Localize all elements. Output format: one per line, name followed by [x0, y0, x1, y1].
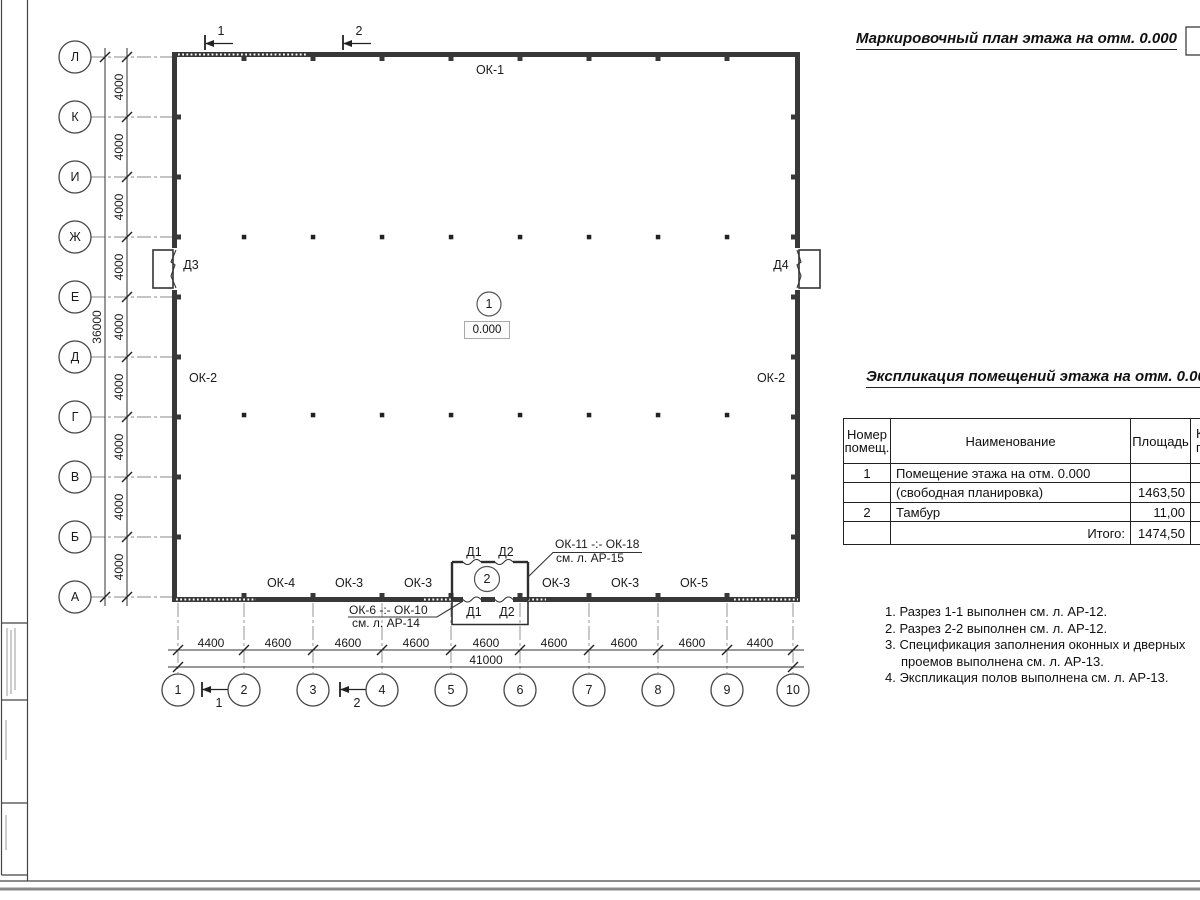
axis-row-label: В	[71, 471, 79, 484]
door-left-porch	[153, 250, 176, 288]
axis-row-label: Л	[71, 51, 79, 64]
callout-left-line1: ОК-6 -:- ОК-10	[349, 604, 428, 616]
table-header-name: Наименование	[891, 419, 1131, 464]
table-cell-category	[1191, 464, 1200, 483]
dim-h: 4600	[541, 637, 568, 649]
axis-row-label: И	[71, 171, 80, 184]
dim-h: 4600	[679, 637, 706, 649]
callout-right-line2: см. л. АР-15	[556, 552, 624, 564]
axis-row-label: Г	[72, 411, 79, 424]
axis-col-label: 4	[379, 684, 386, 697]
level-mark: 0.000	[464, 321, 510, 339]
door-mark: Д2	[498, 546, 513, 559]
top-right-box	[1186, 27, 1200, 55]
dim-v: 4000	[113, 554, 125, 581]
axis-col-label: 7	[586, 684, 593, 697]
room-explication-table: Номерпомещ. Наименование Площадь Капо 1 …	[843, 418, 1200, 545]
section-mark-label: 2	[354, 697, 361, 710]
axis-col-label: 6	[517, 684, 524, 697]
axis-col-label: 5	[448, 684, 455, 697]
note-item: 3. Спецификация заполнения оконных и две…	[885, 637, 1200, 670]
table-header-number: Номерпомещ.	[844, 419, 891, 464]
window-mark: ОК-4	[267, 577, 295, 590]
callout-right-line1: ОК-11 -:- ОК-18	[555, 538, 639, 550]
table-cell-total-area: 1474,50	[1131, 522, 1191, 544]
table-cell-area	[1131, 464, 1191, 483]
window-mark: ОК-3	[335, 577, 363, 590]
axis-row-label: К	[71, 111, 78, 124]
window-mark: ОК-2	[189, 372, 217, 385]
axis-row-label: Е	[71, 291, 79, 304]
axis-col-label: 1	[175, 684, 182, 697]
axis-row-label: Ж	[69, 231, 81, 244]
dim-h-total: 41000	[469, 654, 502, 666]
window-mark: ОК-3	[611, 577, 639, 590]
table-cell-total-label: Итого:	[891, 522, 1131, 544]
note-item: 2. Разрез 2-2 выполнен см. л. АР-12.	[885, 621, 1200, 638]
axis-col-label: 9	[724, 684, 731, 697]
table-cell-name: Тамбур	[891, 503, 1131, 522]
section-mark-label: 1	[218, 25, 225, 38]
dim-h: 4600	[403, 637, 430, 649]
notes-list: 1. Разрез 1-1 выполнен см. л. АР-12. 2. …	[885, 604, 1200, 687]
window-mark: ОК-2	[757, 372, 785, 385]
dim-h: 4600	[473, 637, 500, 649]
dim-v: 4000	[113, 254, 125, 281]
room-number: 2	[484, 573, 491, 586]
dim-v-total: 36000	[91, 310, 103, 343]
table-cell-num	[844, 522, 891, 544]
table-header-area: Площадь	[1131, 419, 1191, 464]
section-mark-label: 2	[356, 25, 363, 38]
axis-col-label: 3	[310, 684, 317, 697]
plan-title: Маркировочный план этажа на отм. 0.000	[856, 30, 1177, 50]
door-mark: Д1	[466, 606, 481, 619]
table-cell-category	[1191, 483, 1200, 503]
axis-row-label: Б	[71, 531, 79, 544]
window-mark: ОК-3	[542, 577, 570, 590]
axis-row-label: А	[71, 591, 79, 604]
axis-circles	[59, 41, 809, 706]
table-cell-num: 1	[844, 464, 891, 483]
dim-v: 4000	[113, 134, 125, 161]
table-cell-area: 1463,50	[1131, 483, 1191, 503]
note-item: 1. Разрез 1-1 выполнен см. л. АР-12.	[885, 604, 1200, 621]
dim-v: 4000	[113, 314, 125, 341]
stamp-text-marks	[6, 628, 15, 850]
table-cell-num	[844, 483, 891, 503]
note-item: 4. Экспликация полов выполнена см. л. АР…	[885, 670, 1200, 687]
table-cell-num: 2	[844, 503, 891, 522]
dim-v: 4000	[113, 194, 125, 221]
table-cell-category	[1191, 522, 1200, 544]
dim-v: 4000	[113, 494, 125, 521]
dim-v: 4000	[113, 74, 125, 101]
table-cell-name: Помещение этажа на отм. 0.000	[891, 464, 1131, 483]
axis-col-label: 8	[655, 684, 662, 697]
room-number: 1	[486, 298, 493, 311]
level-mark-value: 0.000	[473, 324, 502, 336]
callout-left-line2: см. л. АР-14	[352, 617, 420, 629]
door-mark: Д2	[499, 606, 514, 619]
door-mark: Д3	[183, 259, 198, 272]
window-mark: ОК-3	[404, 577, 432, 590]
dim-v: 4000	[113, 374, 125, 401]
door-mark: Д1	[466, 546, 481, 559]
dim-h: 4600	[335, 637, 362, 649]
table-cell-category	[1191, 503, 1200, 522]
window-mark: ОК-1	[476, 64, 504, 77]
dimension-lines	[105, 48, 804, 667]
dim-h: 4600	[611, 637, 638, 649]
drawing-sheet: Маркировочный план этажа на отм. 0.000 Э…	[0, 0, 1200, 900]
table-cell-area: 11,00	[1131, 503, 1191, 522]
table-title: Экспликация помещений этажа на отм. 0.00…	[866, 368, 1200, 388]
door-mark: Д4	[773, 259, 788, 272]
axis-row-label: Д	[71, 351, 79, 364]
section-mark-label: 1	[216, 697, 223, 710]
dim-h: 4600	[265, 637, 292, 649]
table-header-category: Капо	[1191, 419, 1200, 464]
dim-h: 4400	[198, 637, 225, 649]
dim-v: 4000	[113, 434, 125, 461]
window-mark: ОК-5	[680, 577, 708, 590]
axis-col-label: 10	[786, 684, 800, 697]
axis-col-label: 2	[241, 684, 248, 697]
table-cell-name: (свободная планировка)	[891, 483, 1131, 503]
dim-h: 4400	[747, 637, 774, 649]
